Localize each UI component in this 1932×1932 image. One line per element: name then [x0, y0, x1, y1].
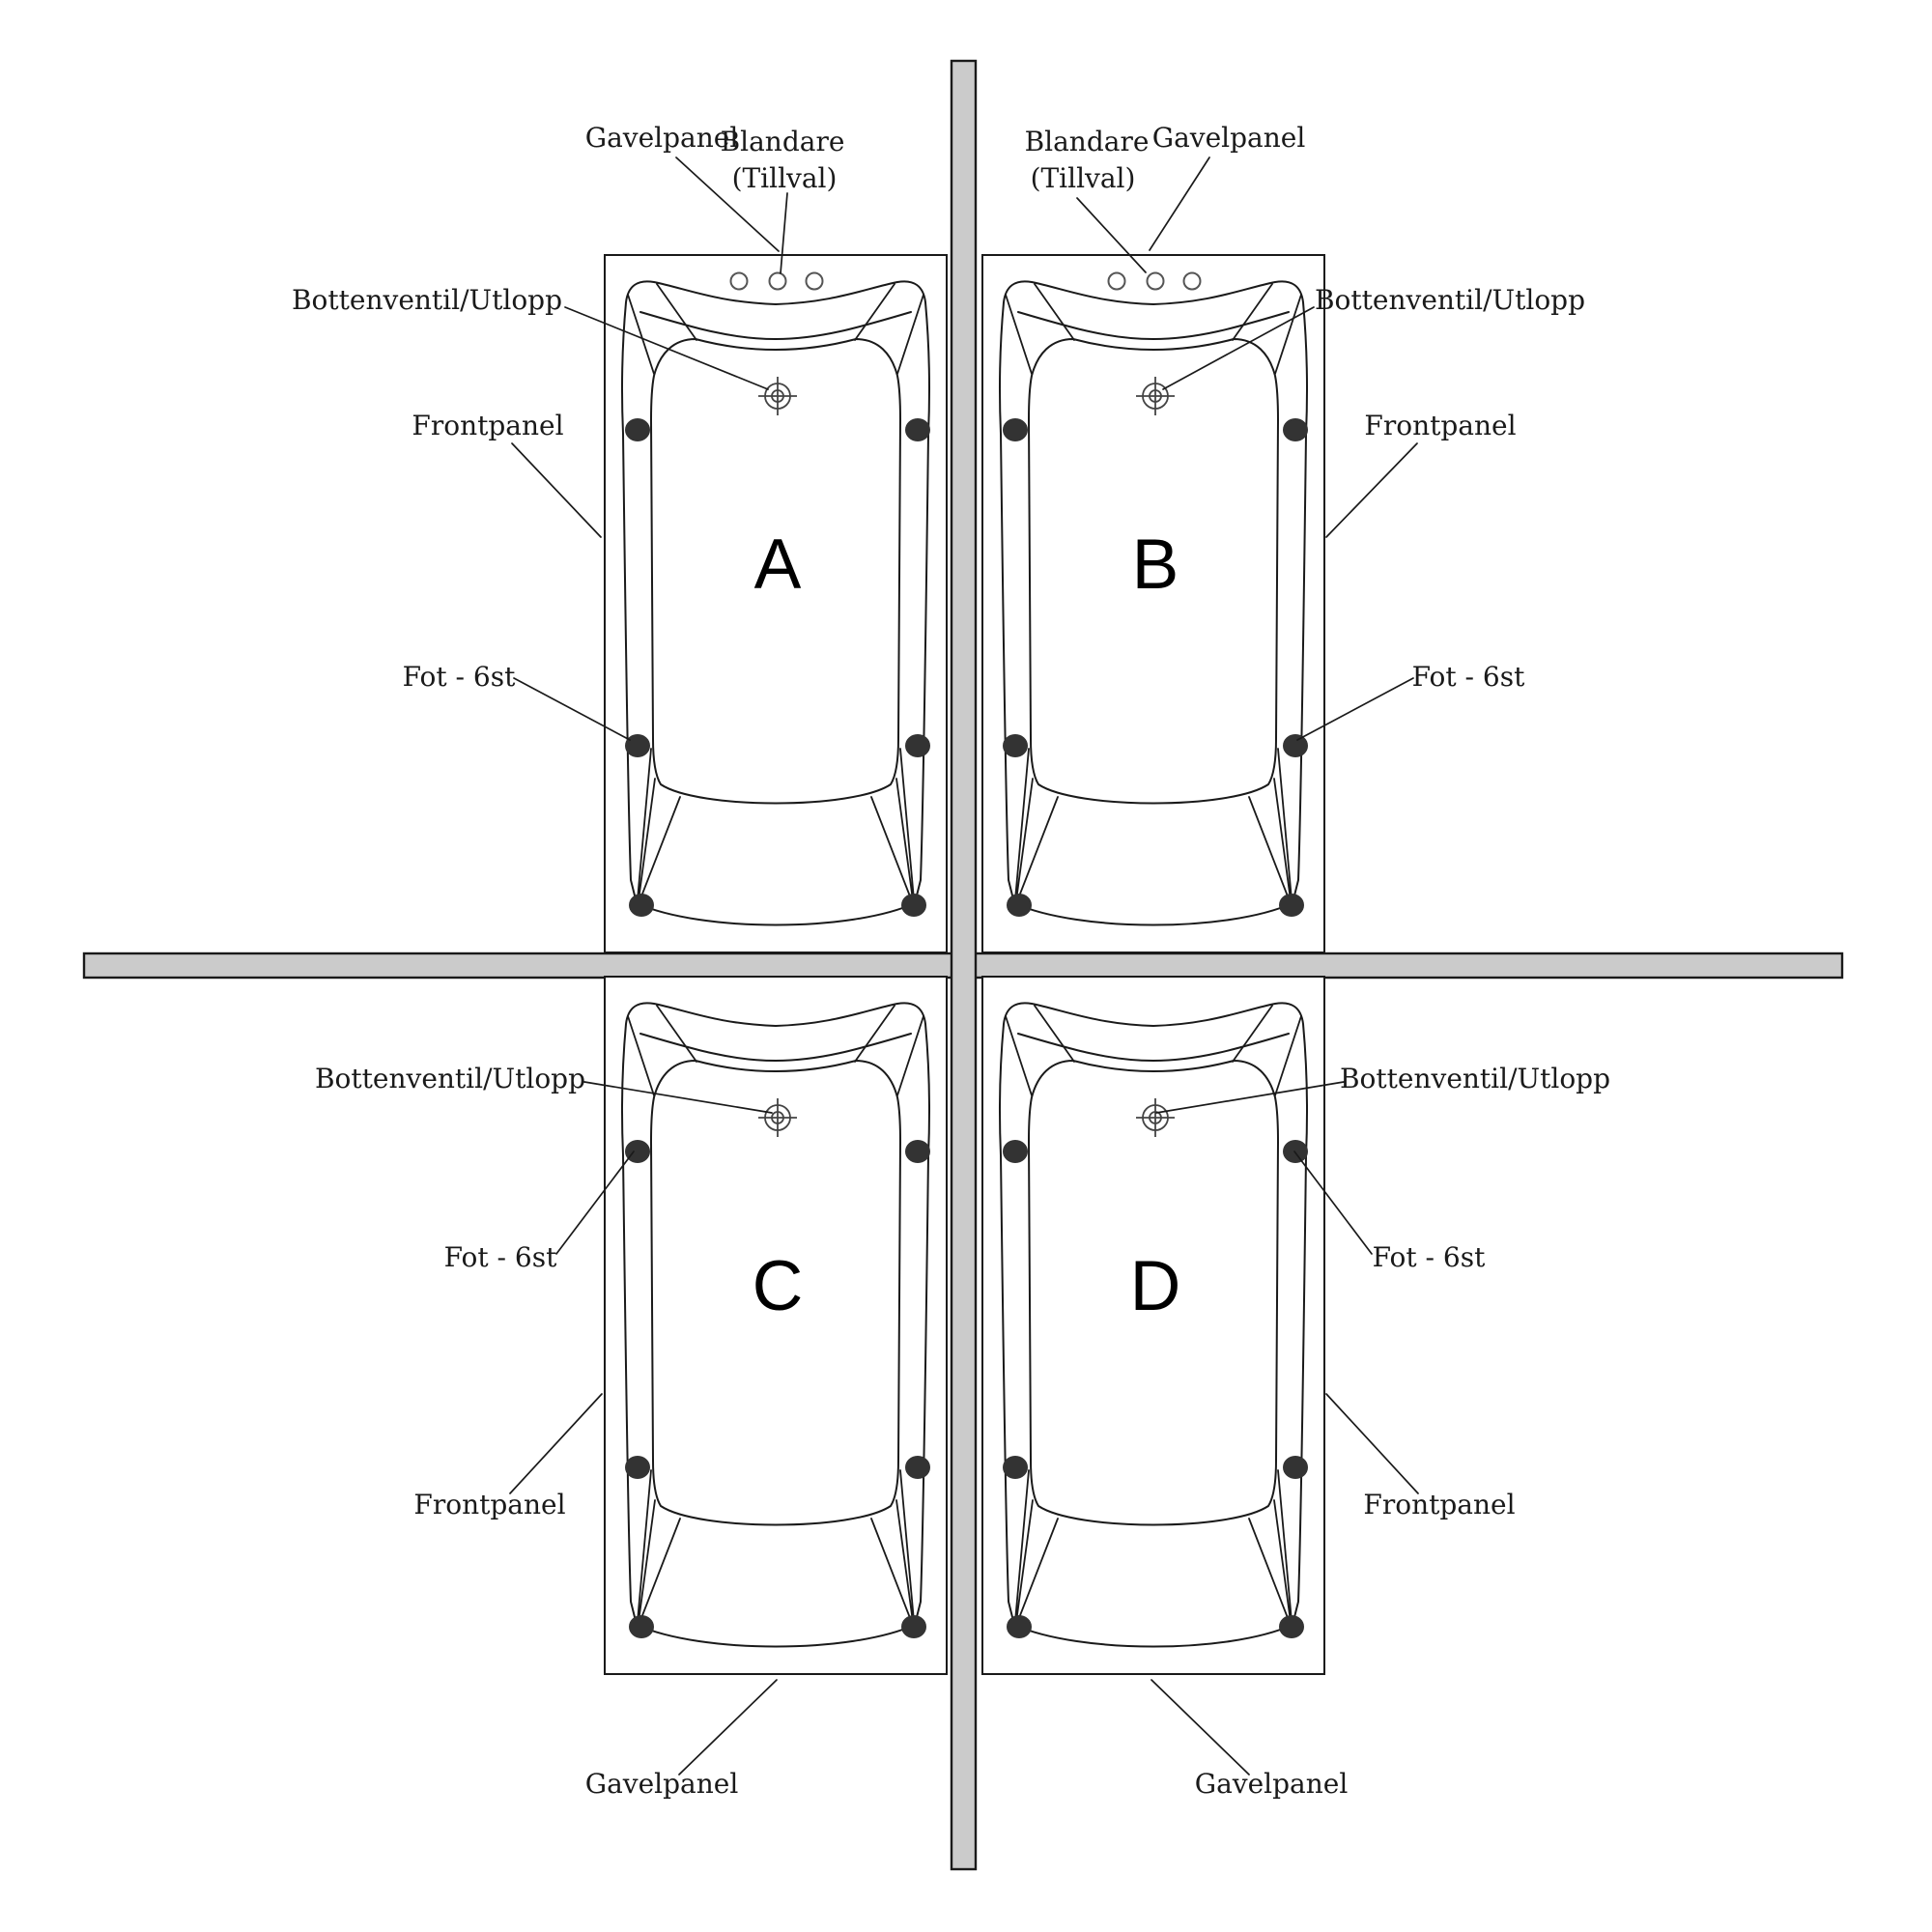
label-gavelpanel-d: Gavelpanel — [1195, 1768, 1349, 1800]
label-frontpanel-d: Frontpanel — [1363, 1489, 1515, 1520]
leader-line-frontpanel-b — [1326, 443, 1417, 537]
tub-a — [605, 255, 947, 952]
label-frontpanel-a: Frontpanel — [412, 410, 563, 441]
label-bottenventil-b: Bottenventil/Utlopp — [1315, 284, 1585, 316]
tub-letter-a: A — [754, 526, 802, 604]
label-bottenventil-d: Bottenventil/Utlopp — [1340, 1063, 1610, 1094]
label-bottenventil-c: Bottenventil/Utlopp — [315, 1063, 585, 1094]
tub-letter-c: C — [753, 1247, 804, 1325]
label-blandare-a-2: (Tillval) — [732, 162, 838, 194]
label-blandare-b-1: Blandare — [1025, 126, 1150, 157]
label-bottenventil-a: Bottenventil/Utlopp — [292, 284, 562, 316]
label-gavelpanel-a: Gavelpanel — [585, 122, 739, 154]
label-fot-c: Fot - 6st — [444, 1241, 557, 1273]
label-fot-a: Fot - 6st — [403, 661, 516, 693]
tub-b — [982, 255, 1324, 952]
label-frontpanel-b: Frontpanel — [1364, 410, 1516, 441]
label-blandare-a-1: Blandare — [721, 126, 845, 157]
leader-line-frontpanel-c — [510, 1394, 602, 1493]
label-fot-d: Fot - 6st — [1373, 1241, 1486, 1273]
leader-line-gavelpanel-d — [1151, 1680, 1249, 1775]
leader-line-frontpanel-a — [512, 443, 601, 537]
tub-d — [982, 977, 1324, 1674]
tub-letter-b: B — [1132, 526, 1179, 604]
leader-line-gavelpanel-c — [679, 1680, 777, 1775]
label-blandare-b-2: (Tillval) — [1031, 162, 1136, 194]
wall-vertical — [952, 61, 976, 1869]
mixer-holes-b — [1109, 273, 1201, 290]
label-fot-b: Fot - 6st — [1412, 661, 1525, 693]
bathtub-installation-diagram: ABCD GavelpanelBlandare(Tillval)Bottenve… — [0, 0, 1932, 1932]
tub-letter-d: D — [1130, 1247, 1181, 1325]
tub-c — [605, 977, 947, 1674]
diagram-page: ABCD GavelpanelBlandare(Tillval)Bottenve… — [0, 0, 1932, 1932]
label-gavelpanel-b: Gavelpanel — [1152, 122, 1306, 154]
leader-line-frontpanel-d — [1326, 1394, 1418, 1493]
mixer-holes-a — [731, 273, 823, 290]
label-frontpanel-c: Frontpanel — [413, 1489, 565, 1520]
label-gavelpanel-c: Gavelpanel — [585, 1768, 739, 1800]
leader-line-gavelpanel-b — [1150, 157, 1209, 250]
